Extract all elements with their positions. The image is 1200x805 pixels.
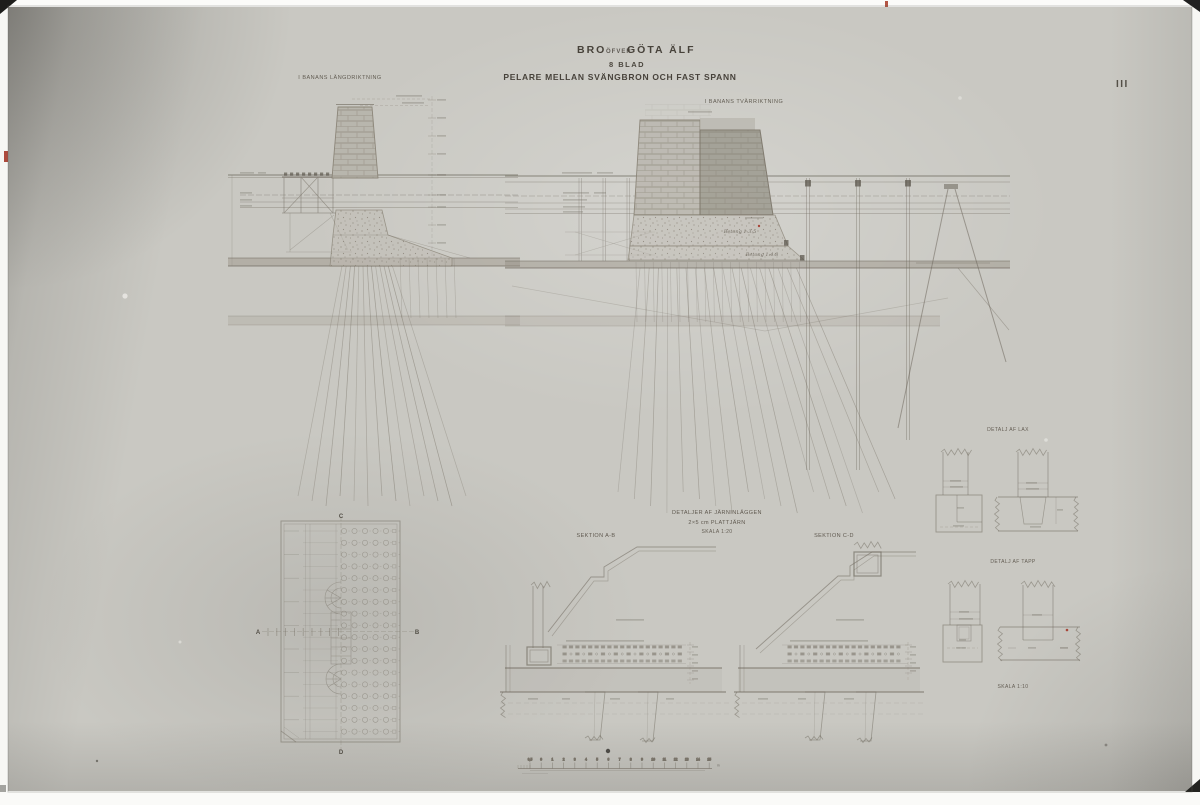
svg-text:1: 1 xyxy=(552,758,554,762)
section-cd-view: SEKTION C-D xyxy=(734,533,926,741)
sheet-title-word-gota-alf: GÖTA ÄLF xyxy=(627,43,696,56)
plan-marker-c: C xyxy=(339,514,344,520)
break-squiggles xyxy=(501,449,1081,743)
jarn-caption-line2: 2×5 cm PLATTJÄRN xyxy=(688,519,745,526)
dark-speck xyxy=(96,760,98,762)
photo-border-bottom xyxy=(0,791,1200,805)
section-cd-label: SEKTION C-D xyxy=(814,533,854,539)
sheet-subtitle-main: PELARE MELLAN SVÄNGBRON OCH FAST SPANN xyxy=(503,72,736,82)
svg-text:7: 7 xyxy=(619,758,621,762)
section-ab-view: SEKTION A-B xyxy=(500,533,730,741)
svg-text:2: 2 xyxy=(563,758,565,762)
dust-speck xyxy=(1044,438,1048,442)
plan-marker-b: B xyxy=(415,630,420,636)
detail-tapp-view: DETALJ AF TAPP SKALA 1:10 xyxy=(943,559,1080,690)
plan-marker-a: A xyxy=(256,630,261,636)
sheet-title-word-bro: BRO xyxy=(577,44,606,56)
iron-inlay-caption: DETALJER AF JÄRNINLÄGGEN 2×5 cm PLATTJÄR… xyxy=(672,509,762,535)
svg-text:6: 6 xyxy=(608,758,610,762)
svg-text:11: 11 xyxy=(663,758,667,762)
a-frame xyxy=(898,184,1009,428)
scale-bar-unit: m xyxy=(717,764,720,768)
svg-text:14: 14 xyxy=(696,758,700,762)
middle-elevation-label: I BANANS TVÄRRIKTNING xyxy=(705,98,784,105)
svg-text:0: 0 xyxy=(540,758,542,762)
middle-elevation-view: I BANANS TVÄRRIKTNING xyxy=(505,98,1010,513)
sheet-subtitle-blad: 8 BLAD xyxy=(609,60,645,69)
plan-view: C D A B xyxy=(256,514,420,756)
betong-upper-label: Betong 1:3:5 xyxy=(723,229,757,235)
svg-text:13: 13 xyxy=(685,758,689,762)
dark-speck xyxy=(1105,744,1108,747)
red-mark-left-edge xyxy=(4,151,8,162)
sheet-number: III xyxy=(1116,79,1129,90)
jarn-caption-line3: SKALA 1:20 xyxy=(702,529,733,535)
dust-speck xyxy=(958,96,962,100)
ink-dot-artifact xyxy=(606,749,610,753)
svg-text:5: 5 xyxy=(596,758,598,762)
scale-bar: 0,50123456789101112131415 m xyxy=(518,749,720,774)
svg-text:3: 3 xyxy=(574,758,576,762)
photo-corner-bottom-left xyxy=(0,785,6,792)
section-ab-label: SEKTION A-B xyxy=(577,533,616,539)
red-speck-2 xyxy=(1066,629,1069,632)
dust-speck xyxy=(179,641,182,644)
jarn-caption-line1: DETALJER AF JÄRNINLÄGGEN xyxy=(672,509,762,516)
red-speck-1 xyxy=(758,225,760,227)
drawing-linework: BRO ÖFVER GÖTA ÄLF 8 BLAD PELARE MELLAN … xyxy=(0,0,1200,805)
title-block: BRO ÖFVER GÖTA ÄLF 8 BLAD PELARE MELLAN … xyxy=(503,43,1128,90)
detail-scale-label: SKALA 1:10 xyxy=(998,684,1029,690)
betong-lower-label: Betong 1:4:8 xyxy=(745,252,779,258)
plan-marker-d: D xyxy=(339,750,344,756)
left-elevation-label: I BANANS LÄNGDRIKTNING xyxy=(298,74,381,81)
svg-text:9: 9 xyxy=(641,758,643,762)
svg-text:0,5: 0,5 xyxy=(528,758,533,762)
svg-text:4: 4 xyxy=(585,758,587,762)
detail-lax-view: DETALJ AF LAX xyxy=(936,427,1078,532)
dust-speck xyxy=(122,293,127,298)
detail-lax-label: DETALJ AF LAX xyxy=(987,427,1029,433)
photograph-of-drawing: BRO ÖFVER GÖTA ÄLF 8 BLAD PELARE MELLAN … xyxy=(0,0,1200,805)
svg-text:12: 12 xyxy=(674,758,678,762)
svg-text:8: 8 xyxy=(630,758,632,762)
detail-tapp-label: DETALJ AF TAPP xyxy=(990,559,1036,565)
left-elevation-view: I BANANS LÄNGDRIKTNING xyxy=(228,74,520,506)
svg-text:10: 10 xyxy=(651,758,655,762)
svg-text:15: 15 xyxy=(707,758,711,762)
